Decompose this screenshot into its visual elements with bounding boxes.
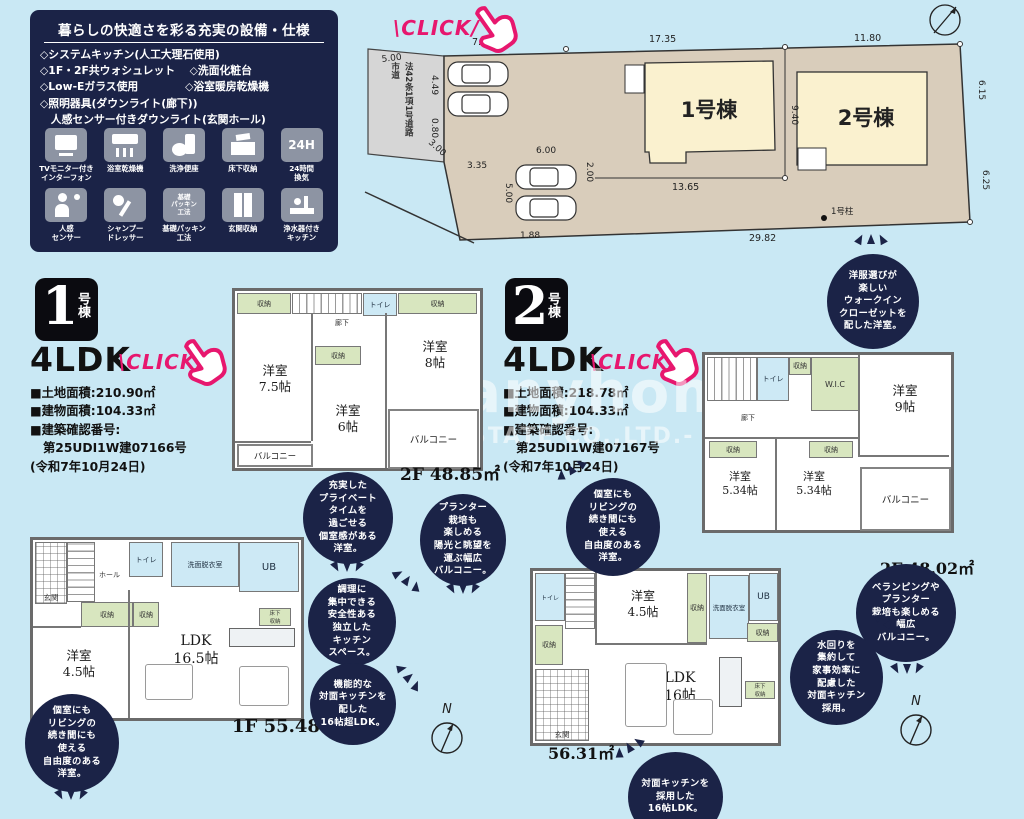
stairs bbox=[565, 573, 595, 629]
building2-porch bbox=[798, 148, 826, 170]
emphasis-marks bbox=[396, 662, 423, 691]
feature-icon-label: 床下収納 bbox=[214, 164, 271, 173]
emphasis-marks bbox=[448, 584, 478, 594]
entrance-storage-icon bbox=[222, 188, 264, 222]
tv-intercom-icon bbox=[45, 128, 87, 162]
closet: 収納 bbox=[237, 293, 291, 314]
dim-label: 5.00 bbox=[503, 183, 513, 203]
dim-label: 13.65 bbox=[672, 182, 699, 193]
dim-label: 1.88 bbox=[520, 231, 540, 241]
wall bbox=[235, 441, 311, 443]
feature-line: ◇1F・2F共ウォシュレット ◇洗面化粧台 bbox=[40, 63, 328, 79]
feature-icon-label: 24時間 換気 bbox=[273, 164, 330, 182]
compass-icon: N bbox=[893, 692, 939, 752]
wall bbox=[595, 643, 707, 645]
dim-label: 6.00 bbox=[536, 146, 556, 156]
wall bbox=[705, 437, 858, 439]
feature-icon-label: 浄水器付き キッチン bbox=[273, 224, 330, 242]
washlet-icon bbox=[163, 128, 205, 162]
stairs bbox=[292, 293, 362, 314]
unit1-2f-area: 2F 48.85㎡ bbox=[400, 460, 500, 485]
feature-line: ◇照明器具(ダウンライト(廊下)) bbox=[40, 96, 328, 112]
room-label: 洋室 9帖 bbox=[865, 383, 945, 416]
dim-label: 6.25 bbox=[980, 170, 990, 190]
hand-cursor-icon[interactable] bbox=[172, 333, 232, 389]
dim-label: 29.82 bbox=[749, 233, 776, 244]
feature-bubble: 対面キッチンを 採用した 16帖LDK。 bbox=[628, 752, 723, 819]
compass-icon bbox=[930, 5, 960, 35]
emphasis-marks bbox=[892, 664, 922, 674]
survey-point bbox=[968, 220, 973, 225]
walk-in-closet: W.I.C bbox=[811, 357, 859, 411]
feature-icon-label: 基礎パッキン 工法 bbox=[156, 224, 213, 242]
unit1-confirm-number: 第25UDI1W建07166号 bbox=[30, 439, 187, 457]
underfloor-storage: 床下 収納 bbox=[745, 681, 775, 699]
dining-table bbox=[239, 666, 289, 706]
dim-label: 3.35 bbox=[467, 161, 487, 171]
closet: 収納 bbox=[709, 441, 757, 458]
entrance: 玄関 bbox=[535, 669, 589, 741]
feature-icon-label: TVモニター付き インターフォン bbox=[38, 164, 95, 182]
foundation-packing-icon: 基礎 パッキン 工法 bbox=[163, 188, 205, 222]
toilet-room: トイレ bbox=[363, 293, 397, 316]
entrance: 玄関 bbox=[35, 542, 67, 604]
closet: 収納 bbox=[315, 346, 361, 365]
survey-point bbox=[783, 176, 788, 181]
features-title: 暮らしの快適さを彩る充実の設備・仕様 bbox=[44, 19, 324, 43]
unit1-confirm-date: (令和7年10月24日) bbox=[30, 458, 187, 476]
unit1-2f-floorplan: 収納 トイレ 収納 廊下 収納 洋室 7.5帖 洋室 6帖 洋室 8帖 バルコニ… bbox=[232, 288, 483, 471]
feature-bubble: 個室にも リビングの 続き間にも 使える 自由度のある 洋室。 bbox=[566, 478, 660, 576]
wall bbox=[311, 313, 313, 441]
closet: 収納 bbox=[133, 602, 159, 627]
unit1-confirm-label: ■建築確認番号: bbox=[30, 421, 187, 439]
balcony: バルコニー bbox=[860, 467, 951, 531]
survey-point bbox=[783, 45, 788, 50]
bathroom: UB bbox=[749, 573, 778, 621]
dim-label: 9.40 bbox=[789, 105, 799, 125]
stairs bbox=[707, 357, 757, 401]
underfloor-storage: 床下 収納 bbox=[259, 608, 291, 626]
wall bbox=[128, 590, 130, 718]
bath-dryer-icon bbox=[104, 128, 146, 162]
feature-icon-label: 浴室乾燥機 bbox=[97, 164, 154, 173]
kitchen-island bbox=[625, 663, 667, 727]
wall bbox=[595, 571, 597, 643]
dim-label: 2.00 bbox=[584, 162, 594, 182]
room-label: 洋室 7.5帖 bbox=[243, 363, 307, 396]
features-bullets: ◇システムキッチン(人工大理石使用) ◇1F・2F共ウォシュレット ◇洗面化粧台… bbox=[40, 47, 328, 128]
feature-bubble: 水回りを 集約して 家事効率に 配慮した 対面キッチン 採用。 bbox=[790, 630, 883, 725]
stairs bbox=[67, 542, 95, 602]
kitchen-counter bbox=[229, 628, 295, 647]
wall bbox=[858, 455, 949, 457]
floor-storage-icon bbox=[222, 128, 264, 162]
bathroom: UB bbox=[239, 542, 299, 592]
toilet-room: トイレ bbox=[757, 357, 789, 401]
compass-icon: N bbox=[424, 700, 470, 760]
hand-cursor-icon[interactable] bbox=[462, 0, 524, 56]
dim-label: 4.49 bbox=[429, 75, 439, 95]
closet: 収納 bbox=[747, 623, 778, 642]
feature-bubble: 調理に 集中できる 安全性ある 独立した キッチン スペース。 bbox=[308, 578, 396, 666]
unit2-suffix: 号棟 bbox=[543, 292, 562, 318]
road-label: 法42条1項1号道路 市道 bbox=[387, 62, 414, 167]
feature-bubble: プランター 栽培も 楽しめる 陽光と眺望を 運ぶ幅広 バルコニー。 bbox=[420, 494, 506, 586]
balcony: バルコニー bbox=[237, 444, 313, 467]
feature-bubble: 機能的な 対面キッチンを 配した 16帖超LDK。 bbox=[310, 663, 396, 745]
pillar-label: 1号柱 bbox=[831, 206, 854, 217]
feature-icon-label: シャンプー ドレッサー bbox=[97, 224, 154, 242]
water-purifier-icon bbox=[281, 188, 323, 222]
watermark-text: STATE CO.,LTD.- bbox=[470, 424, 694, 449]
hallway-label: 廊下 bbox=[741, 413, 755, 423]
shampoo-dresser-icon bbox=[104, 188, 146, 222]
closet: 収納 bbox=[789, 357, 811, 375]
feature-line: ◇システムキッチン(人工大理石使用) bbox=[40, 47, 328, 63]
feature-bubble: 洋服選びが 楽しい ウォークイン クローゼットを 配した洋室。 bbox=[827, 254, 919, 349]
motion-sensor-icon bbox=[45, 188, 87, 222]
feature-icon-label: 洗浄便座 bbox=[156, 164, 213, 173]
unit1-badge: 1 号棟 bbox=[35, 278, 98, 341]
wall bbox=[858, 355, 860, 455]
pillar-point bbox=[821, 215, 827, 221]
dining-table bbox=[673, 699, 713, 735]
dim-label: 11.80 bbox=[854, 33, 881, 44]
room-label: 洋室 8帖 bbox=[400, 339, 470, 372]
unit2-badge: 2 号棟 bbox=[505, 278, 568, 341]
feature-line: 人感センサー付きダウンライト(玄関ホール) bbox=[40, 112, 328, 128]
wall bbox=[385, 313, 387, 468]
svg-text:N: N bbox=[911, 694, 921, 709]
dim-label: 17.35 bbox=[649, 34, 676, 45]
survey-point bbox=[564, 47, 569, 52]
flyer-page: 暮らしの快適さを彩る充実の設備・仕様 ◇システムキッチン(人工大理石使用) ◇1… bbox=[0, 0, 1024, 819]
feature-bubble: 個室にも リビングの 続き間にも 使える 自由度のある 洋室。 bbox=[25, 694, 119, 792]
unit2-1f-area: 56.31㎡ bbox=[548, 740, 614, 764]
washroom: 洗面脱衣室 bbox=[709, 575, 749, 639]
sofa bbox=[145, 664, 193, 700]
dim-label: 0.80 bbox=[429, 118, 439, 138]
washroom: 洗面脱衣室 bbox=[171, 542, 239, 587]
room-label: 洋室 5.34帖 bbox=[781, 470, 847, 499]
unit1-info: ■土地面積:210.90㎡ ■建物面積:104.33㎡ ■建築確認番号: 第25… bbox=[30, 384, 187, 476]
toilet-room: トイレ bbox=[535, 573, 565, 621]
closet: 収納 bbox=[535, 625, 563, 665]
room-label: 洋室 6帖 bbox=[317, 403, 379, 436]
room-label: 洋室 5.34帖 bbox=[707, 470, 773, 499]
toilet-room: トイレ bbox=[129, 542, 163, 577]
unit1-suffix: 号棟 bbox=[73, 292, 92, 318]
closet: 収納 bbox=[809, 441, 853, 458]
unit1-building-area: ■建物面積:104.33㎡ bbox=[30, 402, 187, 420]
emphasis-marks bbox=[392, 567, 422, 592]
survey-point bbox=[958, 42, 963, 47]
svg-text:N: N bbox=[442, 702, 452, 717]
hallway-label: 廊下 bbox=[335, 318, 349, 328]
unit2-2f-floorplan: トイレ 収納 W.I.C 廊下 洋室 9帖 収納 収納 洋室 5.34帖 洋室 … bbox=[702, 352, 954, 533]
features-icon-grid: TVモニター付き インターフォン 浴室乾燥機 洗浄便座 床下収納 24H24時間… bbox=[38, 128, 330, 242]
unit2-1f-floorplan: トイレ 洋室 4.5帖 収納 洗面脱衣室 UB 収納 収納 玄関 LDK 16帖… bbox=[530, 568, 781, 746]
emphasis-marks bbox=[56, 790, 86, 800]
room-label: 洋室 4.5帖 bbox=[43, 648, 115, 681]
unit1-land-area: ■土地面積:210.90㎡ bbox=[30, 384, 187, 402]
closet: 収納 bbox=[81, 602, 133, 627]
emphasis-marks bbox=[856, 234, 886, 244]
closet: 収納 bbox=[687, 573, 707, 643]
building2-label: 2号棟 bbox=[838, 106, 896, 130]
feature-bubble: 充実した プライベート タイムを 過ごせる 個室感がある 洋室。 bbox=[303, 472, 393, 564]
wall bbox=[775, 439, 777, 530]
unit1-layout: 4LDK bbox=[30, 340, 131, 379]
feature-line: ◇Low-Eガラス使用 ◇浴室暖房乾燥機 bbox=[40, 79, 328, 95]
room-label: LDK 16.5帖 bbox=[161, 632, 231, 668]
dim-label: 6.15 bbox=[976, 80, 986, 100]
wall bbox=[33, 626, 81, 628]
hall-label: ホール bbox=[99, 570, 120, 580]
closet: 収納 bbox=[398, 293, 477, 314]
room-label: 洋室 4.5帖 bbox=[603, 589, 683, 620]
building1-porch bbox=[625, 65, 644, 93]
feature-icon-label: 人感 センサー bbox=[38, 224, 95, 242]
emphasis-marks bbox=[332, 562, 362, 572]
ventilation-24h-icon: 24H bbox=[281, 128, 323, 162]
building1-label: 1号棟 bbox=[681, 98, 739, 122]
kitchen-counter bbox=[719, 657, 742, 707]
features-box: 暮らしの快適さを彩る充実の設備・仕様 ◇システムキッチン(人工大理石使用) ◇1… bbox=[30, 10, 338, 252]
feature-icon-label: 玄関収納 bbox=[214, 224, 271, 233]
